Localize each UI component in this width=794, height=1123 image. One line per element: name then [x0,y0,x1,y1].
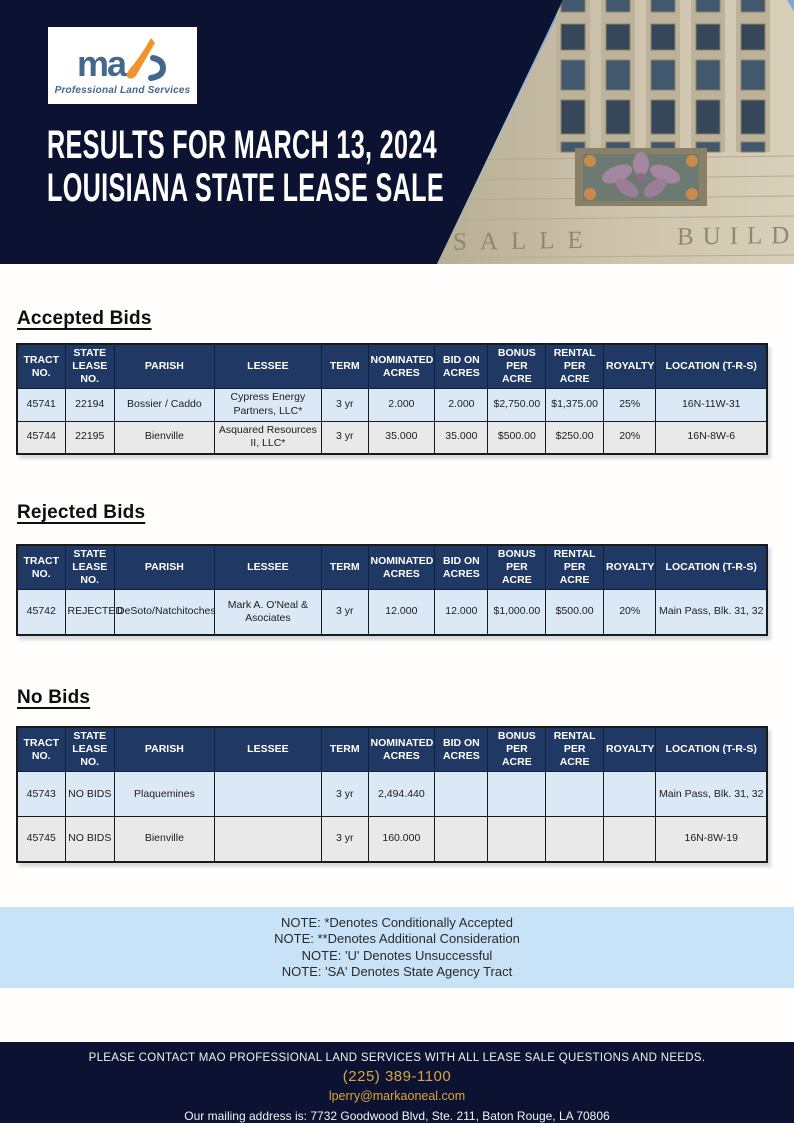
table-cell: 35.000 [368,421,435,454]
table-cell [435,817,488,862]
logo-blue-arc [151,58,163,78]
table-row: 4574122194Bossier / CaddoCypress Energy … [17,389,767,421]
table-cell: Main Pass, Blk. 31, 32 [656,590,767,635]
footer-phone: (225) 389-1100 [0,1068,794,1085]
note-line: NOTE: **Denotes Additional Consideration [274,931,520,948]
table-cell: 16N-8W-19 [656,817,767,862]
table-cell: 20% [603,421,656,454]
footer-contact-line: PLEASE CONTACT MAO PROFESSIONAL LAND SER… [0,1042,794,1064]
table-cell: 45745 [17,817,65,862]
column-header: RENTAL PER ACRE [546,344,604,389]
column-header: RENTAL PER ACRE [546,727,604,772]
table-cell: DeSoto/Natchitoches [115,590,215,635]
column-header: STATE LEASE NO. [65,344,115,389]
table-cell: Mark A. O'Neal & Asociates [214,590,321,635]
relief-panel [575,148,707,206]
table-cell: 3 yr [322,421,369,454]
column-header: ROYALTY [603,545,656,590]
column-header: TRACT NO. [17,344,65,389]
column-header: LOCATION (T-R-S) [656,344,767,389]
table-cell: Bienville [115,421,215,454]
column-header: BONUS PER ACRE [488,545,546,590]
footer-banner: PLEASE CONTACT MAO PROFESSIONAL LAND SER… [0,1042,794,1123]
section-heading-rejected: Rejected Bids [17,502,769,524]
table-cell: Bossier / Caddo [115,389,215,421]
column-header: TERM [322,344,369,389]
table-cell [546,817,604,862]
table-cell: 12.000 [435,590,488,635]
document-page: SALLE BUILD ma Professional Land Service… [0,0,794,1123]
logo-subtitle: Professional Land Services [55,85,191,96]
column-header: PARISH [115,727,215,772]
table-cell: $2,750.00 [488,389,546,421]
table-cell: 20% [603,590,656,635]
column-header: BID ON ACRES [435,545,488,590]
rejected-bids-table: TRACT NO.STATE LEASE NO.PARISHLESSEETERM… [16,544,768,636]
table-cell: 12.000 [368,590,435,635]
column-header: BID ON ACRES [435,344,488,389]
table-row: 45742REJECTEDDeSoto/NatchitochesMark A. … [17,590,767,635]
table-cell: 45744 [17,421,65,454]
column-header: NOMINATED ACRES [368,344,435,389]
column-header: LESSEE [214,727,321,772]
inscription-left: SALLE [453,227,596,256]
table-cell: 2.000 [435,389,488,421]
logo-text: ma [77,43,128,84]
header-row: TRACT NO.STATE LEASE NO.PARISHLESSEETERM… [17,727,767,772]
building-photo: SALLE BUILD [437,0,794,264]
title-line-1: RESULTS FOR MARCH 13, 2024 [47,123,437,167]
table-cell [603,817,656,862]
column-header: PARISH [115,545,215,590]
note-line: NOTE: *Denotes Conditionally Accepted [281,915,513,932]
note-line: NOTE: 'U' Denotes Unsuccessful [302,948,493,965]
table-cell: $250.00 [546,421,604,454]
column-header: NOMINATED ACRES [368,545,435,590]
column-header: BID ON ACRES [435,727,488,772]
table-row: 45743NO BIDSPlaquemines3 yr2,494.440Main… [17,772,767,817]
table-cell: 22194 [65,389,115,421]
note-line: NOTE: 'SA' Denotes State Agency Tract [282,964,512,981]
table-row: 4574422195BienvilleAsquared Resources II… [17,421,767,454]
footer-email-link[interactable]: lperry@markaoneal.com [329,1089,465,1103]
column-header: ROYALTY [603,727,656,772]
column-header: LESSEE [214,545,321,590]
table-cell: 35.000 [435,421,488,454]
table-cell: 2.000 [368,389,435,421]
accepted-bids-table: TRACT NO.STATE LEASE NO.PARISHLESSEETERM… [16,343,768,455]
column-header: STATE LEASE NO. [65,727,115,772]
column-header: TRACT NO. [17,727,65,772]
column-header: STATE LEASE NO. [65,545,115,590]
title-line-2: LOUISIANA STATE LEASE SALE [47,166,444,210]
column-header: BONUS PER ACRE [488,344,546,389]
table-cell: REJECTED [65,590,115,635]
table-cell: $1,000.00 [488,590,546,635]
column-header: LOCATION (T-R-S) [656,727,767,772]
table-cell: Asquared Resources II, LLC* [214,421,321,454]
table-cell [603,772,656,817]
footer-address: Our mailing address is: 7732 Goodwood Bl… [0,1109,794,1123]
table-cell [214,817,321,862]
table-cell: Cypress Energy Partners, LLC* [214,389,321,421]
column-header: PARISH [115,344,215,389]
table-cell: 22195 [65,421,115,454]
column-header: ROYALTY [603,344,656,389]
table-cell: 16N-11W-31 [656,389,767,421]
table-cell: $1,375.00 [546,389,604,421]
logo: ma Professional Land Services [48,27,197,104]
table-cell: 3 yr [322,389,369,421]
table-cell [435,772,488,817]
table-cell: 45742 [17,590,65,635]
table-cell: Bienville [115,817,215,862]
header-row: TRACT NO.STATE LEASE NO.PARISHLESSEETERM… [17,545,767,590]
page-title: RESULTS FOR MARCH 13, 2024 LOUISIANA STA… [47,124,444,210]
table-cell: 160.000 [368,817,435,862]
table-cell: 3 yr [322,772,369,817]
column-header: NOMINATED ACRES [368,727,435,772]
table-cell: 3 yr [322,817,369,862]
section-heading-accepted: Accepted Bids [17,308,769,330]
table-cell: NO BIDS [65,772,115,817]
nobids-bids-table: TRACT NO.STATE LEASE NO.PARISHLESSEETERM… [16,726,768,863]
column-header: RENTAL PER ACRE [546,545,604,590]
table-cell: 16N-8W-6 [656,421,767,454]
table-cell: 25% [603,389,656,421]
table-cell: Plaquemines [115,772,215,817]
table-row: 45745NO BIDSBienville3 yr160.00016N-8W-1… [17,817,767,862]
column-header: BONUS PER ACRE [488,727,546,772]
table-cell: $500.00 [546,590,604,635]
column-header: TERM [322,545,369,590]
notes-band: NOTE: *Denotes Conditionally Accepted NO… [0,907,794,988]
column-header: TRACT NO. [17,545,65,590]
table-cell: $500.00 [488,421,546,454]
table-cell [488,817,546,862]
table-cell [546,772,604,817]
table-cell: 2,494.440 [368,772,435,817]
mao-logo-graphic: ma [63,36,183,84]
column-header: TERM [322,727,369,772]
table-cell [488,772,546,817]
bid-sections: Accepted BidsTRACT NO.STATE LEASE NO.PAR… [16,264,769,863]
header-banner: SALLE BUILD ma Professional Land Service… [0,0,794,264]
table-cell: Main Pass, Blk. 31, 32 [656,772,767,817]
building-photo-illustration: SALLE BUILD [437,0,794,264]
inscription-right: BUILD [677,222,794,251]
table-cell: 45741 [17,389,65,421]
table-cell: 3 yr [322,590,369,635]
column-header: LESSEE [214,344,321,389]
section-heading-nobids: No Bids [17,687,769,709]
table-cell: 45743 [17,772,65,817]
header-row: TRACT NO.STATE LEASE NO.PARISHLESSEETERM… [17,344,767,389]
column-header: LOCATION (T-R-S) [656,545,767,590]
table-cell [214,772,321,817]
table-cell: NO BIDS [65,817,115,862]
